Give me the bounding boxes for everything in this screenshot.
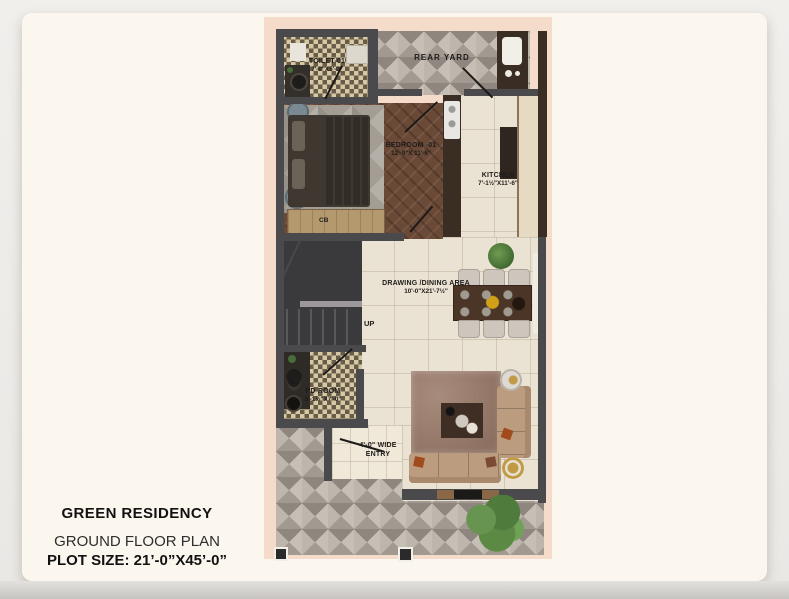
patio-plant (460, 495, 526, 553)
wall (282, 97, 374, 104)
project-title: GREEN RESIDENCY (37, 505, 237, 522)
drawing-dining-label: DRAWING /DINING AREA 10'-0"X21'-7½" (364, 279, 488, 296)
room-dims: 12'-9"X 11'-6" (366, 150, 456, 158)
coffee-table (441, 403, 483, 438)
wall (538, 31, 547, 237)
bedroom-label: BEDROOM -01 12'-9"X 11'-6" (366, 141, 456, 158)
gate-post (274, 547, 288, 561)
entry-label: 4'-0" WIDE ENTRY (348, 441, 408, 459)
wall (282, 345, 366, 352)
stair-railing (300, 301, 362, 307)
room-name: BEDROOM -01 (366, 141, 456, 150)
wall (282, 233, 404, 241)
wall (276, 29, 284, 425)
up-label: UP (364, 319, 374, 328)
wardrobe-label: CB (319, 217, 328, 224)
wall (276, 29, 378, 37)
wall (374, 89, 422, 96)
entry-line1: 4'-0" WIDE (348, 441, 408, 450)
plan-subtitle: GROUND FLOOR PLAN (37, 533, 237, 550)
kitchen-label: KITCHEN 7'-1½"X11'-6" (460, 171, 536, 188)
plot-size: PLOT SIZE: 21’-0”X45’-0” (37, 552, 237, 569)
utility-fixture-icon (515, 71, 520, 76)
kitchen-counter-right (517, 95, 540, 237)
room-name: DRAWING /DINING AREA (364, 279, 488, 288)
dining-chair (458, 320, 480, 338)
dining-chair (483, 320, 505, 338)
room-name: KITCHEN (460, 171, 536, 180)
bed-blanket (324, 117, 368, 205)
room-dims: 7'-1½"X11'-6" (460, 180, 536, 188)
rear-yard-label: REAR YARD (382, 53, 502, 62)
toilet-label: TOILET-01 7'-0"X5'-0" (282, 57, 372, 74)
room-dims: 5'-1½"X7'-0" (288, 396, 358, 404)
wall (464, 89, 540, 96)
gate-post (398, 547, 413, 562)
room-dims: 10'-0"X21'-7½" (364, 288, 488, 296)
pillow (292, 121, 305, 151)
cushion (413, 456, 425, 468)
window (533, 253, 538, 333)
sofa-section-vertical (497, 386, 531, 458)
dining-chair (508, 320, 530, 338)
side-table (500, 369, 522, 391)
cushion (485, 456, 497, 468)
floor-plan: CB (264, 17, 552, 559)
side-table (502, 457, 524, 479)
wall (538, 237, 546, 503)
pd-room-label: PD ROOM 5'-1½"X7'-0" (288, 387, 358, 404)
wall (324, 425, 332, 481)
plant-icon (288, 355, 296, 363)
room-name: REAR YARD (414, 53, 470, 62)
pillow (292, 159, 305, 189)
room-name: TOILET-01 (282, 57, 372, 66)
room-dims: 7'-0"X5'-0" (282, 66, 372, 74)
plant-icon (488, 243, 514, 269)
wall (276, 419, 368, 428)
washer-icon (502, 37, 522, 65)
wardrobe-cb (287, 209, 385, 236)
entry-line2: ENTRY (348, 450, 408, 459)
stair-treads (286, 309, 358, 349)
washbasin-icon (290, 73, 308, 91)
utility-fixture-icon (505, 70, 512, 77)
room-name: PD ROOM (288, 387, 358, 396)
bottom-shadow-band (0, 581, 789, 599)
title-block: GREEN RESIDENCY GROUND FLOOR PLAN PLOT S… (37, 505, 237, 569)
cooktop-icon (444, 101, 460, 139)
